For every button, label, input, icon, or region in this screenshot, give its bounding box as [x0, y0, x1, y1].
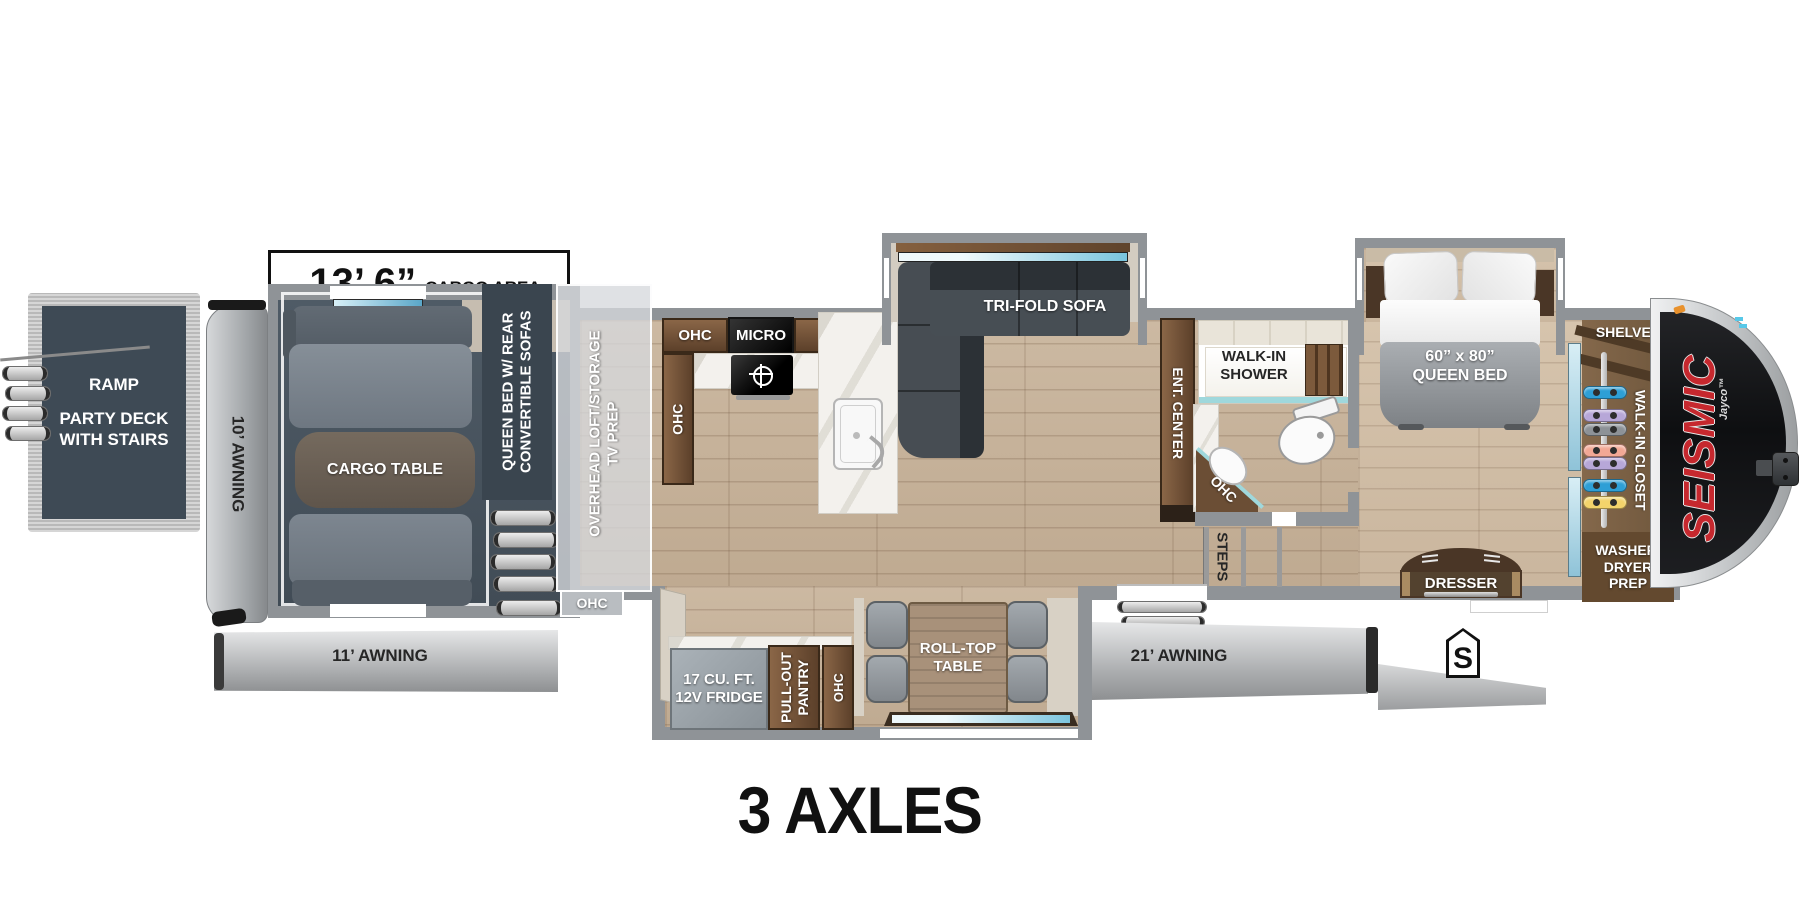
dinette-window-bottom-wall [880, 729, 1080, 738]
bed-pillow-right [1461, 251, 1537, 306]
sofa-slideout-glass [898, 252, 1128, 262]
dresser-vent-right [1484, 554, 1500, 558]
garage-steps [488, 510, 558, 638]
ramp-door-cap-bottom [211, 608, 247, 628]
pullout-pantry-label: PULL-OUT PANTRY [768, 645, 820, 730]
clothes-hanger-icon [1583, 444, 1627, 457]
clothes-hanger-icon [1583, 386, 1627, 399]
dining-chair [866, 655, 908, 703]
sofa-slideout-shelf [896, 243, 1130, 252]
spare-badge-inner: S [1449, 631, 1477, 675]
clothes-hanger-icon [1583, 457, 1627, 470]
mirror-door-top [1568, 343, 1581, 471]
party-deck-label: PARTY DECK WITH STAIRS [59, 409, 168, 449]
trifold-sofa-chaise-seams2 [898, 390, 960, 392]
dresser-vent-left2 [1422, 559, 1438, 563]
stove-burner-cross2 [749, 373, 773, 375]
bedroom-slideout-window-right [1558, 258, 1563, 300]
baggage-door [1470, 600, 1548, 613]
bed-foot-right [1504, 424, 1530, 430]
steps-label: STEPS [1206, 529, 1238, 585]
clothes-hanger-icon [1583, 423, 1627, 436]
shower-label: WALK-IN SHOWER [1202, 348, 1306, 383]
garage-window-bottom [330, 604, 426, 617]
hanger-list [1582, 0, 1628, 920]
spare-badge: S [1446, 628, 1480, 678]
overhead-loft-label: OVERHEAD LOFT/STORAGE TV PREP [556, 284, 652, 584]
sink-drain [853, 432, 860, 439]
hitch-bolt-bottom [1783, 475, 1788, 480]
bottom-wall-mid [1090, 586, 1117, 600]
garage-sofa-top-seat [289, 344, 472, 428]
bedroom-slideout-window-left [1357, 258, 1362, 300]
sofa-slideout-window-left [884, 258, 889, 298]
kitchen-ohc-top-left: OHC [662, 318, 728, 353]
entry-door-opening [1117, 584, 1207, 600]
cap-marker-cyan2 [1739, 324, 1747, 328]
dinette-nook-right [1047, 598, 1078, 716]
trifold-sofa-label: TRI-FOLD SOFA [960, 298, 1130, 317]
stove [731, 355, 793, 395]
entertainment-center-label: ENT. CENTER [1160, 318, 1195, 508]
cap-marker-cyan1 [1735, 317, 1743, 321]
walk-in-closet-label: WALK-IN CLOSET [1628, 378, 1652, 522]
dinette-window-glass [892, 715, 1070, 723]
dresser-vent-left [1422, 554, 1438, 558]
bed-label: 60” x 80” QUEEN BED [1390, 348, 1530, 386]
clothes-hanger-icon [1583, 496, 1627, 509]
vanity-ohc-label: OHC [1194, 478, 1254, 500]
dinette-wall-right [1078, 586, 1092, 740]
garage-queen-bed-label: QUEEN BED W/ REAR CONVERTIBLE SOFAS [482, 284, 552, 500]
bath-door-gap [1272, 512, 1296, 526]
kitchen-sink [833, 398, 883, 470]
clothes-hanger-icon [1583, 409, 1627, 422]
bed-sheet [1380, 300, 1540, 346]
garage-ohc: OHC [560, 590, 624, 617]
ramp-door-cap-top [208, 300, 266, 310]
main-awning-cap [1366, 627, 1378, 693]
stove-burner-cross [760, 364, 762, 388]
toilet-bowl [1272, 408, 1342, 472]
hitch-bolt-top [1783, 458, 1788, 463]
main-awning-label: 21’ AWNING [1104, 646, 1254, 666]
floorplan-canvas: 13’ 6” CARGO AREA RAMP PARTY DECK WITH S… [0, 0, 1800, 920]
bath-bedroom-wall-nub [1348, 492, 1359, 526]
jayco-logo: Jayco™ [1714, 366, 1734, 432]
stove-burner-icon [753, 366, 773, 386]
dinette-ohc-label: OHC [822, 645, 854, 730]
spare-badge-letter: S [1453, 642, 1473, 675]
dining-chair [866, 601, 908, 649]
shower-tile-band [1199, 321, 1349, 345]
roll-top-table: ROLL-TOP TABLE [908, 602, 1008, 714]
ramp-label: RAMP [89, 375, 139, 395]
step-edge [1241, 527, 1246, 587]
party-deck: RAMP PARTY DECK WITH STAIRS [42, 306, 186, 519]
dresser-vent-right2 [1484, 559, 1500, 563]
garage-awning-label: 11’ AWNING [280, 646, 480, 666]
dining-chair [1006, 601, 1048, 649]
stove-handle [736, 395, 790, 400]
shower-seat [1305, 344, 1343, 396]
dimension-bracket-line [268, 250, 570, 253]
bedroom-slideout-wall-top [1355, 238, 1565, 248]
axle-count-title: 3 AXLES [560, 772, 1160, 848]
garage-awning-cap [214, 633, 224, 690]
sofa-slideout-wall-top [882, 233, 1147, 243]
sofa-slideout-window-right [1140, 258, 1145, 298]
hitch-pin-box [1772, 452, 1799, 486]
dinette-window [884, 712, 1078, 726]
kitchen-ohc-side-label: OHC [662, 353, 694, 485]
dining-chair [1006, 655, 1048, 703]
clothes-hanger-icon [1583, 479, 1627, 492]
rear-awning-label: 10’ AWNING [206, 330, 268, 598]
bed-pillow-left [1383, 251, 1459, 306]
dinette-nook-left [854, 598, 864, 716]
garage-sofa-bottom-backrest [292, 580, 472, 606]
fridge: 17 CU. FT. 12V FRIDGE [670, 648, 768, 730]
step-edge [1277, 527, 1282, 587]
mirror-door-bottom [1568, 477, 1581, 577]
kitchen-microwave: MICRO [728, 317, 794, 354]
garage-sofa-top-backrest [292, 306, 472, 348]
cargo-table: CARGO TABLE [295, 432, 475, 508]
dresser-handle [1424, 592, 1498, 597]
deck-stairs [2, 366, 52, 458]
bed-foot-left [1398, 424, 1424, 430]
garage-sofa-bottom-seat [289, 514, 472, 586]
